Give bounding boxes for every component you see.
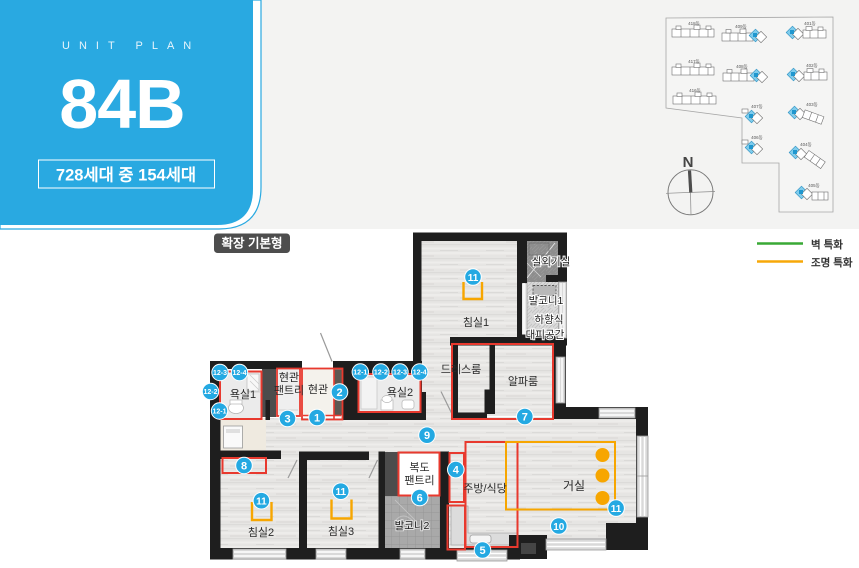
svg-text:침실1: 침실1	[463, 316, 489, 329]
svg-text:6: 6	[417, 493, 423, 505]
svg-text:5: 5	[479, 545, 485, 557]
svg-text:드레스룸: 드레스룸	[441, 363, 481, 376]
svg-text:팬트리: 팬트리	[274, 384, 304, 397]
svg-text:12-3: 12-3	[393, 370, 407, 377]
svg-text:대피공간: 대피공간	[526, 329, 565, 341]
svg-text:12-4: 12-4	[413, 370, 427, 377]
svg-text:발코니2: 발코니2	[395, 520, 430, 532]
svg-text:416동: 416동	[689, 88, 701, 93]
svg-text:12-4: 12-4	[232, 370, 246, 377]
svg-text:407동: 407동	[751, 104, 763, 109]
svg-text:N: N	[683, 154, 694, 171]
svg-text:4: 4	[453, 465, 460, 477]
svg-text:2: 2	[336, 387, 342, 399]
svg-text:9: 9	[424, 430, 430, 442]
svg-text:11: 11	[468, 273, 479, 284]
svg-text:405동: 405동	[808, 183, 820, 188]
svg-text:11: 11	[256, 497, 267, 508]
svg-text:실외기실: 실외기실	[532, 256, 571, 268]
svg-text:UNIT PLAN: UNIT PLAN	[62, 40, 200, 52]
svg-text:발코니1: 발코니1	[529, 295, 564, 307]
svg-text:404동: 404동	[800, 142, 812, 147]
svg-text:하향식: 하향식	[535, 313, 564, 326]
svg-text:현관: 현관	[279, 371, 299, 384]
svg-text:11: 11	[611, 504, 622, 515]
svg-text:401동: 401동	[804, 21, 816, 26]
svg-text:12-2: 12-2	[203, 389, 217, 396]
svg-text:409동: 409동	[735, 24, 747, 29]
svg-text:주방/식당: 주방/식당	[463, 482, 507, 495]
svg-text:418동: 418동	[688, 21, 700, 26]
svg-text:12-1: 12-1	[353, 370, 367, 377]
svg-text:복도: 복도	[409, 461, 429, 474]
svg-text:8: 8	[241, 461, 247, 473]
svg-text:조명 특화: 조명 특화	[811, 256, 853, 269]
svg-text:11: 11	[336, 487, 347, 498]
svg-text:3: 3	[284, 414, 290, 426]
svg-text:10: 10	[553, 522, 565, 533]
svg-text:12-3: 12-3	[213, 370, 227, 377]
svg-text:408동: 408동	[736, 64, 748, 69]
svg-text:현관: 현관	[308, 383, 328, 396]
svg-text:403동: 403동	[806, 102, 818, 107]
svg-text:거실: 거실	[563, 479, 585, 493]
svg-text:7: 7	[522, 412, 528, 424]
svg-text:침실2: 침실2	[248, 526, 274, 539]
svg-text:12-2: 12-2	[374, 370, 388, 377]
svg-text:1: 1	[314, 413, 320, 425]
svg-text:팬트리: 팬트리	[404, 474, 434, 487]
svg-text:욕실2: 욕실2	[387, 386, 413, 399]
svg-text:알파룸: 알파룸	[508, 374, 538, 388]
svg-text:벽 특화: 벽 특화	[811, 238, 843, 251]
svg-text:84B: 84B	[59, 65, 184, 143]
svg-text:417동: 417동	[688, 59, 700, 64]
svg-text:침실3: 침실3	[328, 525, 354, 538]
svg-text:406동: 406동	[751, 135, 763, 140]
svg-text:728세대 중 154세대: 728세대 중 154세대	[56, 166, 196, 185]
svg-text:확장 기본형: 확장 기본형	[222, 236, 283, 251]
svg-text:402동: 402동	[806, 63, 818, 68]
svg-text:욕실1: 욕실1	[230, 388, 256, 401]
svg-text:12-1: 12-1	[212, 409, 226, 416]
